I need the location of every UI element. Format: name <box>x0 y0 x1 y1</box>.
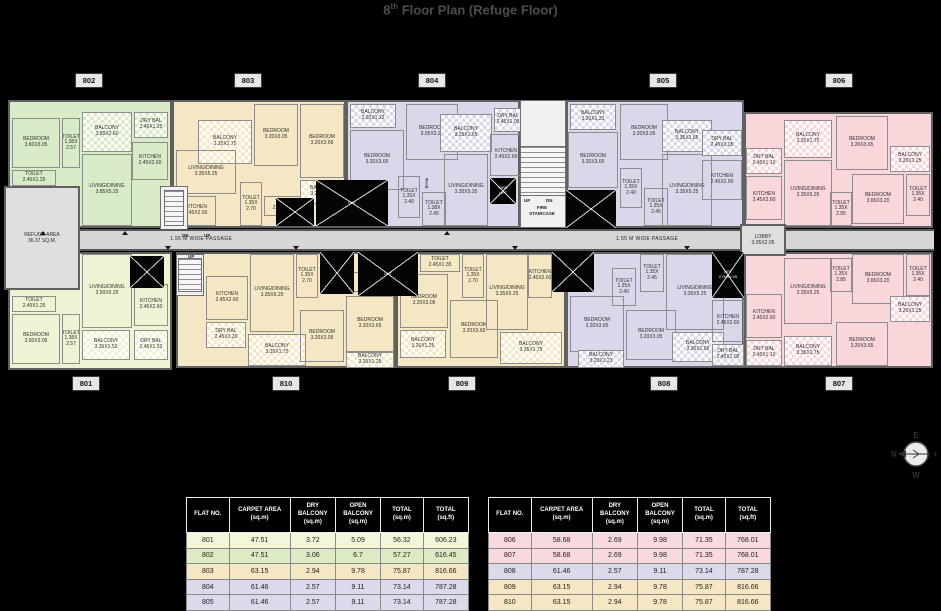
passage-label: 1.55 M WIDE PASSAGE <box>170 236 232 242</box>
room: LIVING/DINING 3.50X5.25 <box>82 254 132 328</box>
passage-arrow <box>293 246 299 250</box>
compass-rose: E N W S <box>886 423 941 485</box>
table-row: 80561.462.579.1173.14787.28 <box>187 595 469 611</box>
table-cell: 63.15 <box>531 595 592 611</box>
table-row: 80363.152.949.7875.87816.66 <box>187 564 469 580</box>
room: LIVING/DINING 3.35X5.25 <box>250 254 294 332</box>
table-cell: 787.28 <box>423 595 468 611</box>
balcony: BALCONY 3.20X1.23 <box>578 350 624 368</box>
table-cell: 61.46 <box>229 595 290 611</box>
room: TOILET 1.38X 2.45 <box>422 192 446 226</box>
table-cell: 804 <box>187 579 230 595</box>
passage-label: 1.55 M WIDE PASSAGE <box>616 236 678 242</box>
room: TOILET 1.35X 2.40 <box>398 176 420 218</box>
passage-arrow <box>165 246 171 250</box>
room: TOILET 1.35X 2.70 <box>240 182 262 226</box>
table-cell: 58.68 <box>531 533 592 549</box>
room: BEDROOM 3.50X3.05 <box>12 314 60 364</box>
table-header: OPEN BALCONY (sq.m) <box>335 498 380 533</box>
passage-arrow <box>512 246 518 250</box>
table-cell: 71.35 <box>683 548 726 564</box>
balcony: BALCONY 3.20X1.25 <box>890 146 930 172</box>
room: LIVING/DINING 3.85X5.25 <box>82 154 132 226</box>
table-cell: 809 <box>489 579 532 595</box>
lift-shaft: LIFT <box>316 180 388 226</box>
table-cell: 61.46 <box>229 579 290 595</box>
table-cell: 805 <box>187 595 230 611</box>
table-cell: 63.15 <box>531 579 592 595</box>
room: TOILET 1.35X 2.40 <box>620 168 642 208</box>
table-header: CARPET AREA (sq.m) <box>229 498 290 533</box>
table-cell: 75.87 <box>381 564 424 580</box>
room: LIVING/DINING 3.35X5.25 <box>784 160 832 226</box>
table-row: 80247.513.066.757.27616.45 <box>187 548 469 564</box>
flat-area-table: FLAT NO.CARPET AREA (sq.m)DRY BALCONY (s… <box>488 497 771 611</box>
room: TOILET 1.35X 2.40 <box>906 254 930 296</box>
table-cell: 71.35 <box>683 533 726 549</box>
balcony: BALCONY 3.20X1.23 <box>350 104 396 128</box>
unit-tag: 810 <box>272 376 300 391</box>
lift-shaft: LIFT 2.05X2.05 <box>712 252 744 298</box>
table-cell: 2.94 <box>592 595 637 611</box>
table-cell: 816.66 <box>423 564 468 580</box>
table-header: FLAT NO. <box>187 498 230 533</box>
passage-arrow <box>40 231 46 235</box>
balcony: BALCONY 3.35X1.75 <box>784 336 832 366</box>
table-cell: 73.14 <box>381 579 424 595</box>
table-cell: 58.68 <box>531 548 592 564</box>
room: KITCHEN 2.45X2.60 <box>746 176 782 220</box>
balcony: DRY BAL 2.45X1.10 <box>746 340 782 366</box>
room: KITCHEN 2.45X2.60 <box>528 254 552 298</box>
compass-label-e: E <box>913 431 919 440</box>
room: LIVING/DINING 3.35X5.25 <box>486 254 528 330</box>
lift-shaft <box>130 256 164 288</box>
table-header: TOTAL (sq.m) <box>683 498 726 533</box>
room: KITCHEN 2.45X2.60 <box>134 284 168 326</box>
table-cell: 2.69 <box>592 533 637 549</box>
room: KITCHEN 2.45X2.60 <box>746 294 782 338</box>
unit-tag: 807 <box>825 376 853 391</box>
balcony: DRY BAL 2.45X1.25 <box>134 112 168 138</box>
room: TOILET 1.38X 2.57 <box>62 314 80 364</box>
table-cell: 768.01 <box>725 533 770 549</box>
table-cell: 9.78 <box>637 579 682 595</box>
table-cell: 2.57 <box>592 564 637 580</box>
unit-tag: 805 <box>649 73 677 88</box>
table-header: DRY BALCONY (sq.m) <box>592 498 637 533</box>
unit-tag: 803 <box>234 73 262 88</box>
balcony: BALCONY 3.20X1.25 <box>346 352 394 368</box>
balcony: BALCONY 3.20X1.25 <box>400 330 446 358</box>
staircase <box>164 190 184 226</box>
room: BEDROOM 3.60X3.05 <box>12 118 60 168</box>
room: TOILET 2.45X1.35 <box>420 254 460 272</box>
table-row: 80461.462.579.1173.14787.28 <box>187 579 469 595</box>
lift-shaft: FIRE LIFT <box>490 178 516 204</box>
room: BEDROOM 3.20X3.05 <box>626 310 676 360</box>
compass-arrowhead <box>898 451 906 458</box>
room: TOILET 2.45X1.25 <box>12 170 56 186</box>
compass-label-w: W <box>912 471 920 480</box>
room: LIVING/DINING 3.35X5.25 <box>444 154 488 226</box>
balcony: DRY BAL 2.45X1.20 <box>206 322 246 348</box>
room: BEDROOM 3.20X3.65 <box>300 104 344 178</box>
unit-tag: 804 <box>418 73 446 88</box>
balcony: DRY BAL 2.45X1.52 <box>134 330 168 360</box>
room: TOILET 1.35X 2.85 <box>830 258 852 292</box>
room: BEDROOM 3.20X3.65 <box>836 322 888 366</box>
lift-shaft: LIFT <box>358 252 418 296</box>
room: TOILET 1.35X 2.45 <box>644 188 668 226</box>
plan-label: UP <box>524 198 530 204</box>
room: TOILET 1.35X 2.70 <box>462 254 484 298</box>
room: TOILET 2.45X1.25 <box>12 296 56 312</box>
balcony: BALCONY 3.20X1.23 <box>570 104 616 130</box>
lift-shaft <box>566 190 616 228</box>
table-cell: 6.7 <box>335 548 380 564</box>
room: BEDROOM 3.20X3.65 <box>346 296 394 352</box>
balcony: BALCONY 3.35X1.75 <box>500 332 562 364</box>
table-header: FLAT NO. <box>489 498 532 533</box>
flat-table-right-host: FLAT NO.CARPET AREA (sq.m)DRY BALCONY (s… <box>488 497 771 611</box>
room: BEDROOM 3.65X3.20 <box>852 174 904 224</box>
table-cell: 75.87 <box>683 579 726 595</box>
table-cell: 9.78 <box>637 595 682 611</box>
room: BEDROOM 3.20X3.65 <box>836 116 888 170</box>
table-header: TOTAL (sq.ft) <box>423 498 468 533</box>
balcony: DRY BAL 2.45X1.10 <box>746 148 782 174</box>
table-cell: 2.57 <box>290 595 335 611</box>
room: LIVING/DINING 3.35X5.25 <box>784 258 832 324</box>
table-cell: 816.66 <box>725 595 770 611</box>
room: TOILET 1.38X 2.57 <box>62 118 80 168</box>
unit-tag: 801 <box>72 376 100 391</box>
compass-label-s: S <box>933 452 937 458</box>
table-cell: 787.28 <box>423 579 468 595</box>
floor-plan: BEDROOM 3.60X3.05TOILET 1.38X 2.57BALCON… <box>0 0 941 611</box>
table-cell: 57.27 <box>381 548 424 564</box>
balcony: BALCONY 3.35X1.65 <box>440 114 492 152</box>
table-cell: 75.87 <box>683 595 726 611</box>
table-row: 80861.462.579.1173.14787.28 <box>489 564 771 580</box>
room: KITCHEN 2.45X2.60 <box>490 134 522 176</box>
table-cell: 9.78 <box>335 564 380 580</box>
table-cell: 616.45 <box>423 548 468 564</box>
table-cell: 3.72 <box>290 533 335 549</box>
table-cell: 9.11 <box>637 564 682 580</box>
balcony: BALCONY 3.85X2.60 <box>82 112 132 152</box>
plan-label: UP <box>204 233 210 239</box>
table-cell: 2.57 <box>290 579 335 595</box>
flat-area-table: FLAT NO.CARPET AREA (sq.m)DRY BALCONY (s… <box>186 497 469 611</box>
room: BEDROOM 3.20X3.05 <box>300 310 344 362</box>
table-cell: 9.11 <box>335 579 380 595</box>
passage-arrow <box>122 231 128 235</box>
table-cell: 801 <box>187 533 230 549</box>
table-cell: 3.06 <box>290 548 335 564</box>
table-row: 81063.152.949.7875.87816.66 <box>489 595 771 611</box>
compass-label-n: N <box>891 450 897 459</box>
room: TOILET 1.35X 2.85 <box>830 192 852 226</box>
room: KITCHEN 2.45X2.60 <box>132 142 168 180</box>
table-header: TOTAL (sq.m) <box>381 498 424 533</box>
staircase <box>178 258 202 292</box>
room: BEDROOM 3.20X3.65 <box>570 296 624 352</box>
table-cell: 9.98 <box>637 533 682 549</box>
table-cell: 810 <box>489 595 532 611</box>
passage-arrow <box>444 231 450 235</box>
unit-tag: 808 <box>650 376 678 391</box>
room: BEDROOM 3.20X3.05 <box>620 104 668 160</box>
room: TOILET 1.35X 2.40 <box>906 174 930 216</box>
lift-shaft <box>320 252 354 294</box>
balcony: DRY BAL 2.45X1.05 <box>702 130 742 156</box>
room: TOILET 1.35X 2.70 <box>296 254 318 298</box>
room: TOILET 1.35X 2.45 <box>640 254 664 292</box>
table-cell: 802 <box>187 548 230 564</box>
room: BEDROOM 3.20X3.05 <box>254 104 298 166</box>
table-cell: 61.46 <box>531 564 592 580</box>
table-row: 80658.682.699.9871.35768.01 <box>489 533 771 549</box>
table-cell: 2.94 <box>290 564 335 580</box>
table-row: 80963.152.949.7875.87816.66 <box>489 579 771 595</box>
table-cell: 606.23 <box>423 533 468 549</box>
lift-shaft <box>552 252 594 292</box>
table-cell: 47.51 <box>229 548 290 564</box>
passage-arrow <box>684 246 690 250</box>
room: KITCHEN 2.45X2.60 <box>712 300 744 342</box>
plan-label: FIRE STAIRCASE <box>512 205 572 216</box>
plan-label: DN <box>182 233 189 239</box>
unit-tag: 806 <box>825 73 853 88</box>
table-cell: 73.14 <box>381 595 424 611</box>
balcony: DRY BAL 2.45X1.05 <box>494 108 522 132</box>
plan-label: DN <box>546 198 553 204</box>
table-cell: 807 <box>489 548 532 564</box>
unit-tag: 802 <box>75 73 103 88</box>
table-cell: 63.15 <box>229 564 290 580</box>
table-cell: 73.14 <box>683 564 726 580</box>
table-row: 80758.682.699.9871.35768.01 <box>489 548 771 564</box>
balcony: BALCONY 3.35X1.75 <box>248 334 306 366</box>
table-cell: 806 <box>489 533 532 549</box>
table-cell: 803 <box>187 564 230 580</box>
balcony: BALCONY 3.35X1.75 <box>784 120 832 158</box>
table-cell: 2.69 <box>592 548 637 564</box>
table-cell: 9.98 <box>637 548 682 564</box>
table-cell: 816.66 <box>725 579 770 595</box>
table-header: DRY BALCONY (sq.m) <box>290 498 335 533</box>
balcony: BALCONY 3.20X1.25 <box>890 296 930 322</box>
table-header: CARPET AREA (sq.m) <box>531 498 592 533</box>
table-cell: 47.51 <box>229 533 290 549</box>
table-row: 80147.513.725.0956.32606.23 <box>187 533 469 549</box>
table-cell: 2.94 <box>592 579 637 595</box>
flat-table-left-host: FLAT NO.CARPET AREA (sq.m)DRY BALCONY (s… <box>186 497 469 611</box>
table-cell: 9.11 <box>335 595 380 611</box>
plan-label: UP <box>188 254 194 260</box>
balcony: DRY BAL 2.45X1.05 <box>712 344 744 366</box>
unit-tag: 809 <box>448 376 476 391</box>
table-cell: 56.32 <box>381 533 424 549</box>
lift-shaft <box>276 198 314 226</box>
balcony: BALCONY 3.35X1.52 <box>82 330 130 360</box>
table-cell: 768.01 <box>725 548 770 564</box>
table-header: OPEN BALCONY (sq.m) <box>637 498 682 533</box>
room: KITCHEN 2.45X2.60 <box>206 276 248 320</box>
table-header: TOTAL (sq.ft) <box>725 498 770 533</box>
common-area: REFUGE AREA 36.37 SQ.M. <box>4 186 80 290</box>
room: KITCHEN 2.45X2.60 <box>702 160 742 200</box>
table-cell: 787.28 <box>725 564 770 580</box>
room: BEDROOM 3.20X3.65 <box>568 132 618 188</box>
common-area: LOBBY 3.05X2.05 <box>740 224 786 256</box>
staircase <box>520 146 566 196</box>
table-cell: 5.09 <box>335 533 380 549</box>
plan-label: W.H.B. <box>424 178 428 189</box>
table-cell: 808 <box>489 564 532 580</box>
